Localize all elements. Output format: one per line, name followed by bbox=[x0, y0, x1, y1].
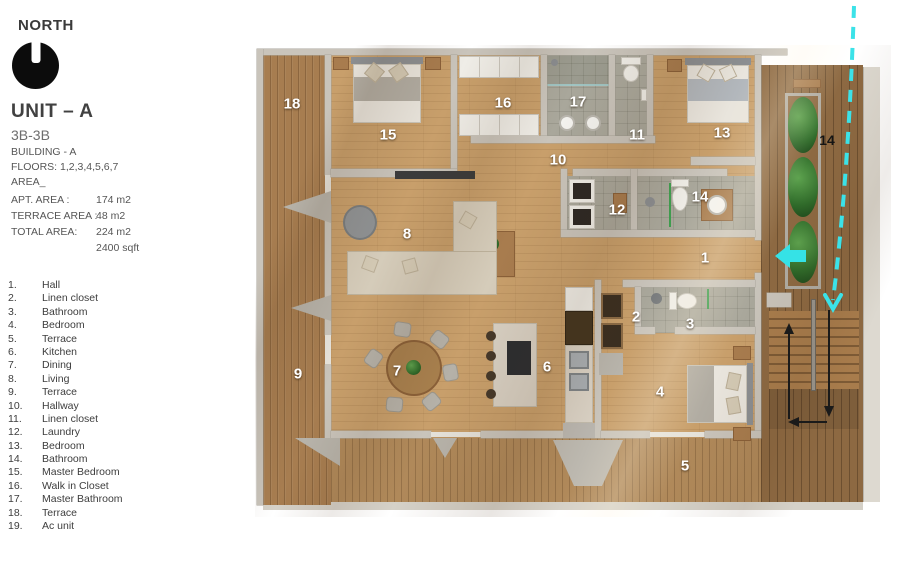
master-bedroom-wall bbox=[451, 55, 457, 177]
toilet-bowl bbox=[677, 293, 697, 309]
legend-item: 12.Laundry bbox=[8, 426, 123, 439]
tall-cabinet bbox=[565, 311, 593, 345]
stair-rail bbox=[811, 299, 816, 391]
stool bbox=[486, 371, 496, 381]
nightstand bbox=[425, 57, 441, 70]
deck-bench bbox=[793, 79, 821, 88]
legend-item: 13.Bedroom bbox=[8, 440, 123, 453]
legend-name: Ac unit bbox=[42, 520, 74, 532]
legend-item: 14.Bathroom bbox=[8, 453, 123, 466]
north-compass-icon bbox=[12, 42, 59, 89]
room-label-bedroom-4: 4 bbox=[656, 384, 664, 401]
wall-jut bbox=[283, 191, 331, 223]
area-row: APT. AREA : 174 m2 bbox=[0, 194, 240, 210]
room-label-linen-closet-11: 11 bbox=[629, 127, 645, 144]
wardrobe-top bbox=[459, 56, 539, 78]
outer-wall-top bbox=[257, 49, 787, 55]
legend-name: Master Bedroom bbox=[42, 466, 120, 478]
south-cluster-wall-top bbox=[623, 280, 755, 287]
cluster-wall-bottom bbox=[561, 230, 755, 237]
legend-num: 4. bbox=[8, 319, 42, 332]
legend-item: 5.Terrace bbox=[8, 333, 123, 346]
nightstand bbox=[733, 427, 751, 441]
wall-jut bbox=[433, 438, 457, 458]
legend-item: 1.Hall bbox=[8, 279, 123, 292]
toilet-tank bbox=[669, 292, 677, 310]
legend-num: 3. bbox=[8, 306, 42, 319]
wall-jut bbox=[295, 438, 340, 466]
cluster-wall-top bbox=[573, 169, 727, 176]
bottom-wall bbox=[331, 431, 431, 438]
wc-sink bbox=[641, 89, 647, 101]
legend-item: 3.Bathroom bbox=[8, 306, 123, 319]
stool bbox=[486, 351, 496, 361]
building-label: BUILDING - A bbox=[11, 146, 76, 158]
planter-plant bbox=[788, 157, 818, 217]
legend-item: 8.Living bbox=[8, 373, 123, 386]
room-label-hall: 1 bbox=[701, 250, 709, 267]
legend-name: Walk in Closet bbox=[42, 480, 109, 492]
fridge bbox=[565, 287, 593, 311]
room-label-master-bedroom: 15 bbox=[380, 127, 397, 144]
sliding-door bbox=[650, 432, 705, 437]
dining-chair bbox=[442, 363, 460, 382]
legend-num: 7. bbox=[8, 359, 42, 372]
legend-name: Linen closet bbox=[42, 292, 98, 304]
legend-num: 19. bbox=[8, 520, 42, 533]
roof-edge-right bbox=[863, 67, 880, 502]
legend-num: 2. bbox=[8, 292, 42, 305]
kitchen-sink bbox=[569, 373, 589, 391]
linen-shelf bbox=[601, 293, 623, 319]
closet-bath-wall bbox=[541, 55, 547, 143]
area-row: TOTAL AREA: 224 m2 bbox=[0, 226, 240, 242]
dryer-door bbox=[573, 209, 591, 225]
legend-item: 16.Walk in Closet bbox=[8, 480, 123, 493]
legend-num: 17. bbox=[8, 493, 42, 506]
bed-headboard bbox=[747, 363, 753, 425]
planter-plant bbox=[788, 97, 818, 153]
area-row-value: 2400 sqft bbox=[96, 242, 139, 254]
legend-item: 4.Bedroom bbox=[8, 319, 123, 332]
legend-item: 2.Linen closet bbox=[8, 292, 123, 305]
legend-item: 19.Ac unit bbox=[8, 520, 123, 533]
pipe bbox=[669, 183, 671, 227]
shower-head-icon bbox=[551, 59, 558, 66]
room-label-kitchen: 6 bbox=[543, 359, 551, 376]
appliance bbox=[563, 423, 595, 438]
room-label-living: 8 bbox=[403, 226, 411, 243]
room-label-bedroom-13: 13 bbox=[714, 125, 731, 142]
room-label-bathroom-3: 3 bbox=[686, 316, 694, 333]
bed-headboard bbox=[351, 57, 423, 64]
armchair bbox=[343, 205, 377, 240]
legend-name: Bedroom bbox=[42, 319, 85, 331]
bedroom-b-wall bbox=[691, 157, 755, 165]
wardrobe-bottom bbox=[459, 114, 539, 136]
legend-name: Kitchen bbox=[42, 346, 77, 358]
legend-name: Bedroom bbox=[42, 440, 85, 452]
cooktop bbox=[507, 341, 531, 375]
legend-name: Dining bbox=[42, 359, 72, 371]
legend-num: 15. bbox=[8, 466, 42, 479]
legend-item: 6.Kitchen bbox=[8, 346, 123, 359]
area-row-label: APT. AREA : bbox=[11, 194, 69, 206]
room-label-laundry: 12 bbox=[609, 202, 626, 219]
room-label-terrace-5: 5 bbox=[681, 458, 689, 475]
area-row-value: 224 m2 bbox=[96, 226, 131, 238]
legend-num: 16. bbox=[8, 480, 42, 493]
room-label-master-bathroom: 17 bbox=[570, 94, 587, 111]
legend-name: Living bbox=[42, 373, 69, 385]
bed-blanket bbox=[688, 79, 748, 101]
north-label: NORTH bbox=[18, 17, 74, 34]
toilet-tank bbox=[671, 179, 689, 187]
legend-name: Hall bbox=[42, 279, 60, 291]
legend-num: 11. bbox=[8, 413, 42, 426]
kitchen-sink bbox=[569, 351, 589, 369]
laundry-bath-divider bbox=[631, 169, 637, 237]
floors-label: FLOORS: 1,2,3,4,5,6,7 bbox=[11, 161, 118, 173]
legend-name: Bathroom bbox=[42, 453, 88, 465]
stool bbox=[486, 389, 496, 399]
room-legend: 1.Hall 2.Linen closet 3.Bathroom 4.Bedro… bbox=[8, 279, 123, 533]
dining-chair bbox=[393, 321, 412, 338]
legend-num: 5. bbox=[8, 333, 42, 346]
dining-chair bbox=[385, 396, 403, 412]
unit-subtitle: 3B-3B bbox=[11, 127, 50, 143]
outer-edge-bottom bbox=[263, 502, 863, 510]
legend-num: 13. bbox=[8, 440, 42, 453]
legend-num: 9. bbox=[8, 386, 42, 399]
legend-item: 9.Terrace bbox=[8, 386, 123, 399]
bed-blanket bbox=[354, 77, 420, 101]
terrace-wall bbox=[325, 55, 331, 175]
legend-name: Linen closet bbox=[42, 413, 98, 425]
floor-plan: 18 15 16 17 11 13 14 10 12 14 1 8 2 3 9 … bbox=[255, 45, 891, 517]
sink bbox=[585, 115, 601, 131]
bath-wc-wall bbox=[609, 55, 615, 143]
area-row: TERRACE AREA : 48 m2 bbox=[0, 210, 240, 226]
linen-shelf bbox=[601, 323, 623, 349]
table-plant bbox=[406, 360, 421, 375]
wc-bedroom-wall bbox=[647, 55, 653, 143]
tv-console bbox=[395, 171, 475, 179]
nightstand bbox=[733, 346, 751, 360]
legend-num: 1. bbox=[8, 279, 42, 292]
sink bbox=[559, 115, 575, 131]
room-label-bathroom-14: 14 bbox=[692, 189, 709, 206]
east-wall bbox=[755, 55, 761, 240]
legend-num: 8. bbox=[8, 373, 42, 386]
legend-num: 14. bbox=[8, 453, 42, 466]
planter-plant bbox=[788, 221, 818, 283]
bathroom-a-wall bbox=[635, 327, 655, 334]
legend-item: 17.Master Bathroom bbox=[8, 493, 123, 506]
room-label-terrace-9: 9 bbox=[294, 366, 302, 383]
legend-num: 18. bbox=[8, 507, 42, 520]
washer-door bbox=[573, 183, 591, 199]
legend-name: Hallway bbox=[42, 400, 79, 412]
room-label-deck-14: 14 bbox=[819, 132, 835, 148]
room-label-dining: 7 bbox=[393, 363, 401, 380]
legend-name: Bathroom bbox=[42, 306, 88, 318]
legend-num: 6. bbox=[8, 346, 42, 359]
cluster-wall-left bbox=[561, 169, 567, 237]
bed-headboard bbox=[685, 58, 751, 65]
terrace-bottom-deck bbox=[331, 438, 761, 502]
area-row-value: 48 m2 bbox=[96, 210, 125, 222]
legend-num: 12. bbox=[8, 426, 42, 439]
pipe bbox=[707, 289, 709, 309]
legend-item: 11.Linen closet bbox=[8, 413, 123, 426]
wall-jut bbox=[291, 295, 331, 321]
legend-num: 10. bbox=[8, 400, 42, 413]
sliding-door bbox=[325, 335, 331, 365]
room-label-hallway: 10 bbox=[550, 152, 567, 169]
outer-wall-left bbox=[257, 49, 263, 505]
legend-name: Terrace bbox=[42, 507, 77, 519]
hallway-wall bbox=[471, 136, 655, 143]
compass-notch bbox=[31, 42, 40, 63]
area-heading: AREA_ bbox=[11, 176, 45, 188]
legend-item: 15.Master Bedroom bbox=[8, 466, 123, 479]
area-row-label: TERRACE AREA : bbox=[11, 210, 97, 222]
legend-item: 7.Dining bbox=[8, 359, 123, 372]
nightstand bbox=[667, 59, 682, 72]
toilet-tank bbox=[621, 57, 641, 65]
bedroom-a-wall-south bbox=[601, 431, 650, 438]
legend-item: 18.Terrace bbox=[8, 507, 123, 520]
legend-name: Laundry bbox=[42, 426, 80, 438]
unit-title: UNIT – A bbox=[11, 101, 93, 123]
terrace-wall bbox=[325, 365, 331, 438]
legend-name: Terrace bbox=[42, 386, 77, 398]
legend-item: 10.Hallway bbox=[8, 400, 123, 413]
area-row-value: 174 m2 bbox=[96, 194, 131, 206]
nightstand bbox=[333, 57, 349, 70]
shower-head-icon bbox=[651, 293, 662, 304]
floor-plan-page: NORTH UNIT – A 3B-3B BUILDING - A FLOORS… bbox=[0, 0, 898, 575]
legend-name: Master Bathroom bbox=[42, 493, 123, 505]
shower-glass bbox=[547, 84, 609, 86]
area-row: 2400 sqft bbox=[0, 242, 240, 258]
linen-cabinet bbox=[599, 353, 623, 375]
east-wall bbox=[755, 273, 761, 438]
room-label-walk-in-closet: 16 bbox=[495, 95, 512, 112]
sink bbox=[707, 195, 727, 215]
stool bbox=[486, 331, 496, 341]
toilet-bowl bbox=[623, 65, 639, 82]
shower-head-icon bbox=[645, 197, 655, 207]
room-label-terrace-18: 18 bbox=[284, 96, 301, 113]
bed-blanket bbox=[688, 366, 714, 422]
legend-name: Terrace bbox=[42, 333, 77, 345]
entry-wall-stub bbox=[767, 293, 791, 307]
pillow bbox=[726, 396, 742, 415]
area-row-label: TOTAL AREA: bbox=[11, 226, 77, 238]
room-label-linen-closet-2: 2 bbox=[632, 309, 640, 326]
sliding-door bbox=[431, 432, 481, 437]
stair-landing bbox=[769, 389, 859, 429]
